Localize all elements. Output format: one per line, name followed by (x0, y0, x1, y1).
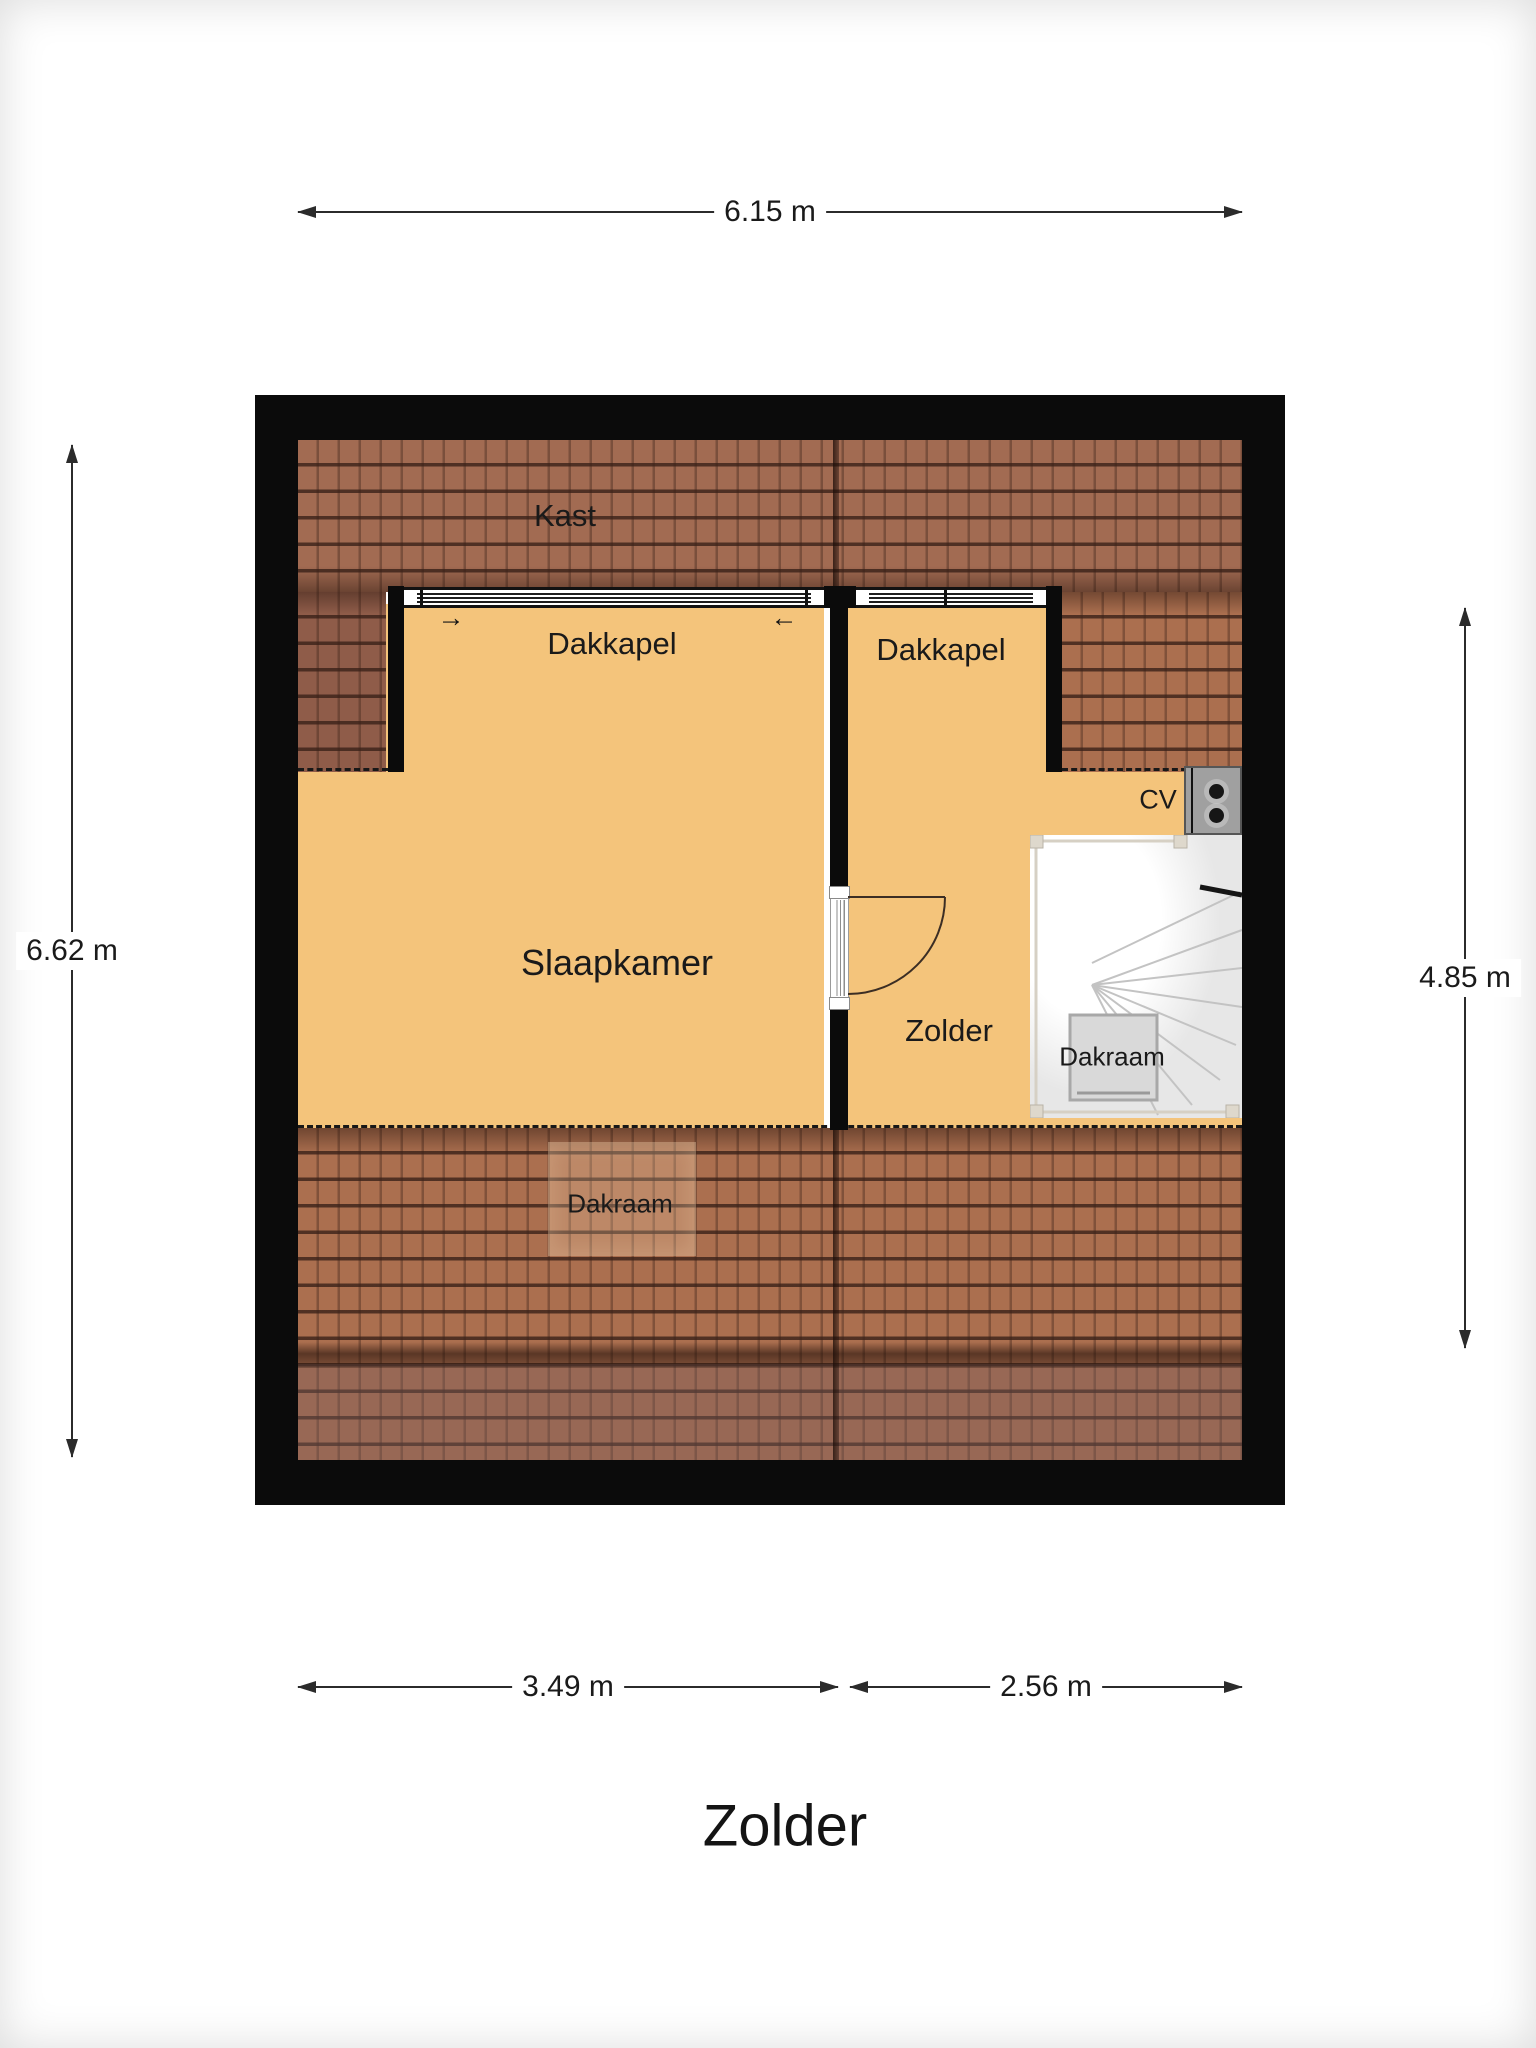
window-direction-arrow-right-icon: → (438, 603, 465, 634)
dimension-right-label: 4.85 m (1409, 959, 1521, 997)
dakkapel-left-side-wall (388, 586, 404, 772)
slaapkamer-floor-extension (298, 772, 388, 1130)
roof-ridge-seam-bottom (833, 1128, 839, 1460)
dakkapel-left-window (404, 587, 824, 608)
door-swing-arc (848, 886, 950, 998)
roof-left-column (298, 592, 386, 772)
slaapkamer-floor (386, 604, 824, 1130)
wall-top (255, 395, 1285, 440)
cv-knob-icon (1209, 784, 1224, 799)
door-jamb-top (829, 886, 850, 899)
window-glazing-lines (417, 591, 811, 604)
door-jamb-bottom (829, 997, 850, 1010)
wall-left (255, 395, 298, 1505)
page-title: Zolder (703, 1793, 867, 1860)
roof-edge-dashed-left (298, 768, 388, 771)
roof-ridge-seam-top (833, 440, 839, 592)
dimension-bottom-right-label: 2.56 m (990, 1668, 1102, 1706)
room-label-zolder: Zolder (905, 1013, 993, 1049)
label-dakraam-stairs: Dakraam (1059, 1042, 1164, 1073)
cv-knob-icon (1209, 808, 1224, 823)
roof-top-band (298, 440, 1242, 592)
interior-wall-upper (830, 604, 848, 886)
wall-bottom (255, 1460, 1285, 1505)
interior-wall-lower (830, 1010, 848, 1130)
room-label-slaapkamer: Slaapkamer (521, 942, 713, 984)
dakkapel-right-side-wall (1046, 586, 1062, 772)
dimension-bottom-left-label: 3.49 m (512, 1668, 624, 1706)
cv-boiler-unit (1184, 766, 1242, 835)
dakkapel-right-window (856, 587, 1046, 608)
room-label-dakkapel-left: Dakkapel (547, 626, 676, 662)
room-label-dakkapel-right: Dakkapel (876, 632, 1005, 668)
room-label-kast: Kast (534, 498, 596, 534)
roof-bottom (298, 1128, 1242, 1460)
dimension-top-label: 6.15 m (714, 193, 826, 231)
floorplan-page: Kast Dakkapel Dakkapel Slaapkamer Zolder… (0, 0, 1536, 2048)
door-leaf (834, 900, 845, 996)
cv-divider-line (1191, 768, 1193, 833)
roof-right-slope (1062, 592, 1242, 772)
wall-right (1242, 395, 1285, 1505)
label-cv: CV (1139, 785, 1177, 816)
label-dakraam-roof: Dakraam (567, 1189, 672, 1220)
staircase (1030, 835, 1242, 1118)
dimension-left-label: 6.62 m (16, 932, 128, 970)
window-glazing-lines (869, 591, 1033, 604)
window-direction-arrow-left-icon: ← (771, 603, 798, 634)
roof-edge-dashed-bottom (298, 1125, 1242, 1128)
